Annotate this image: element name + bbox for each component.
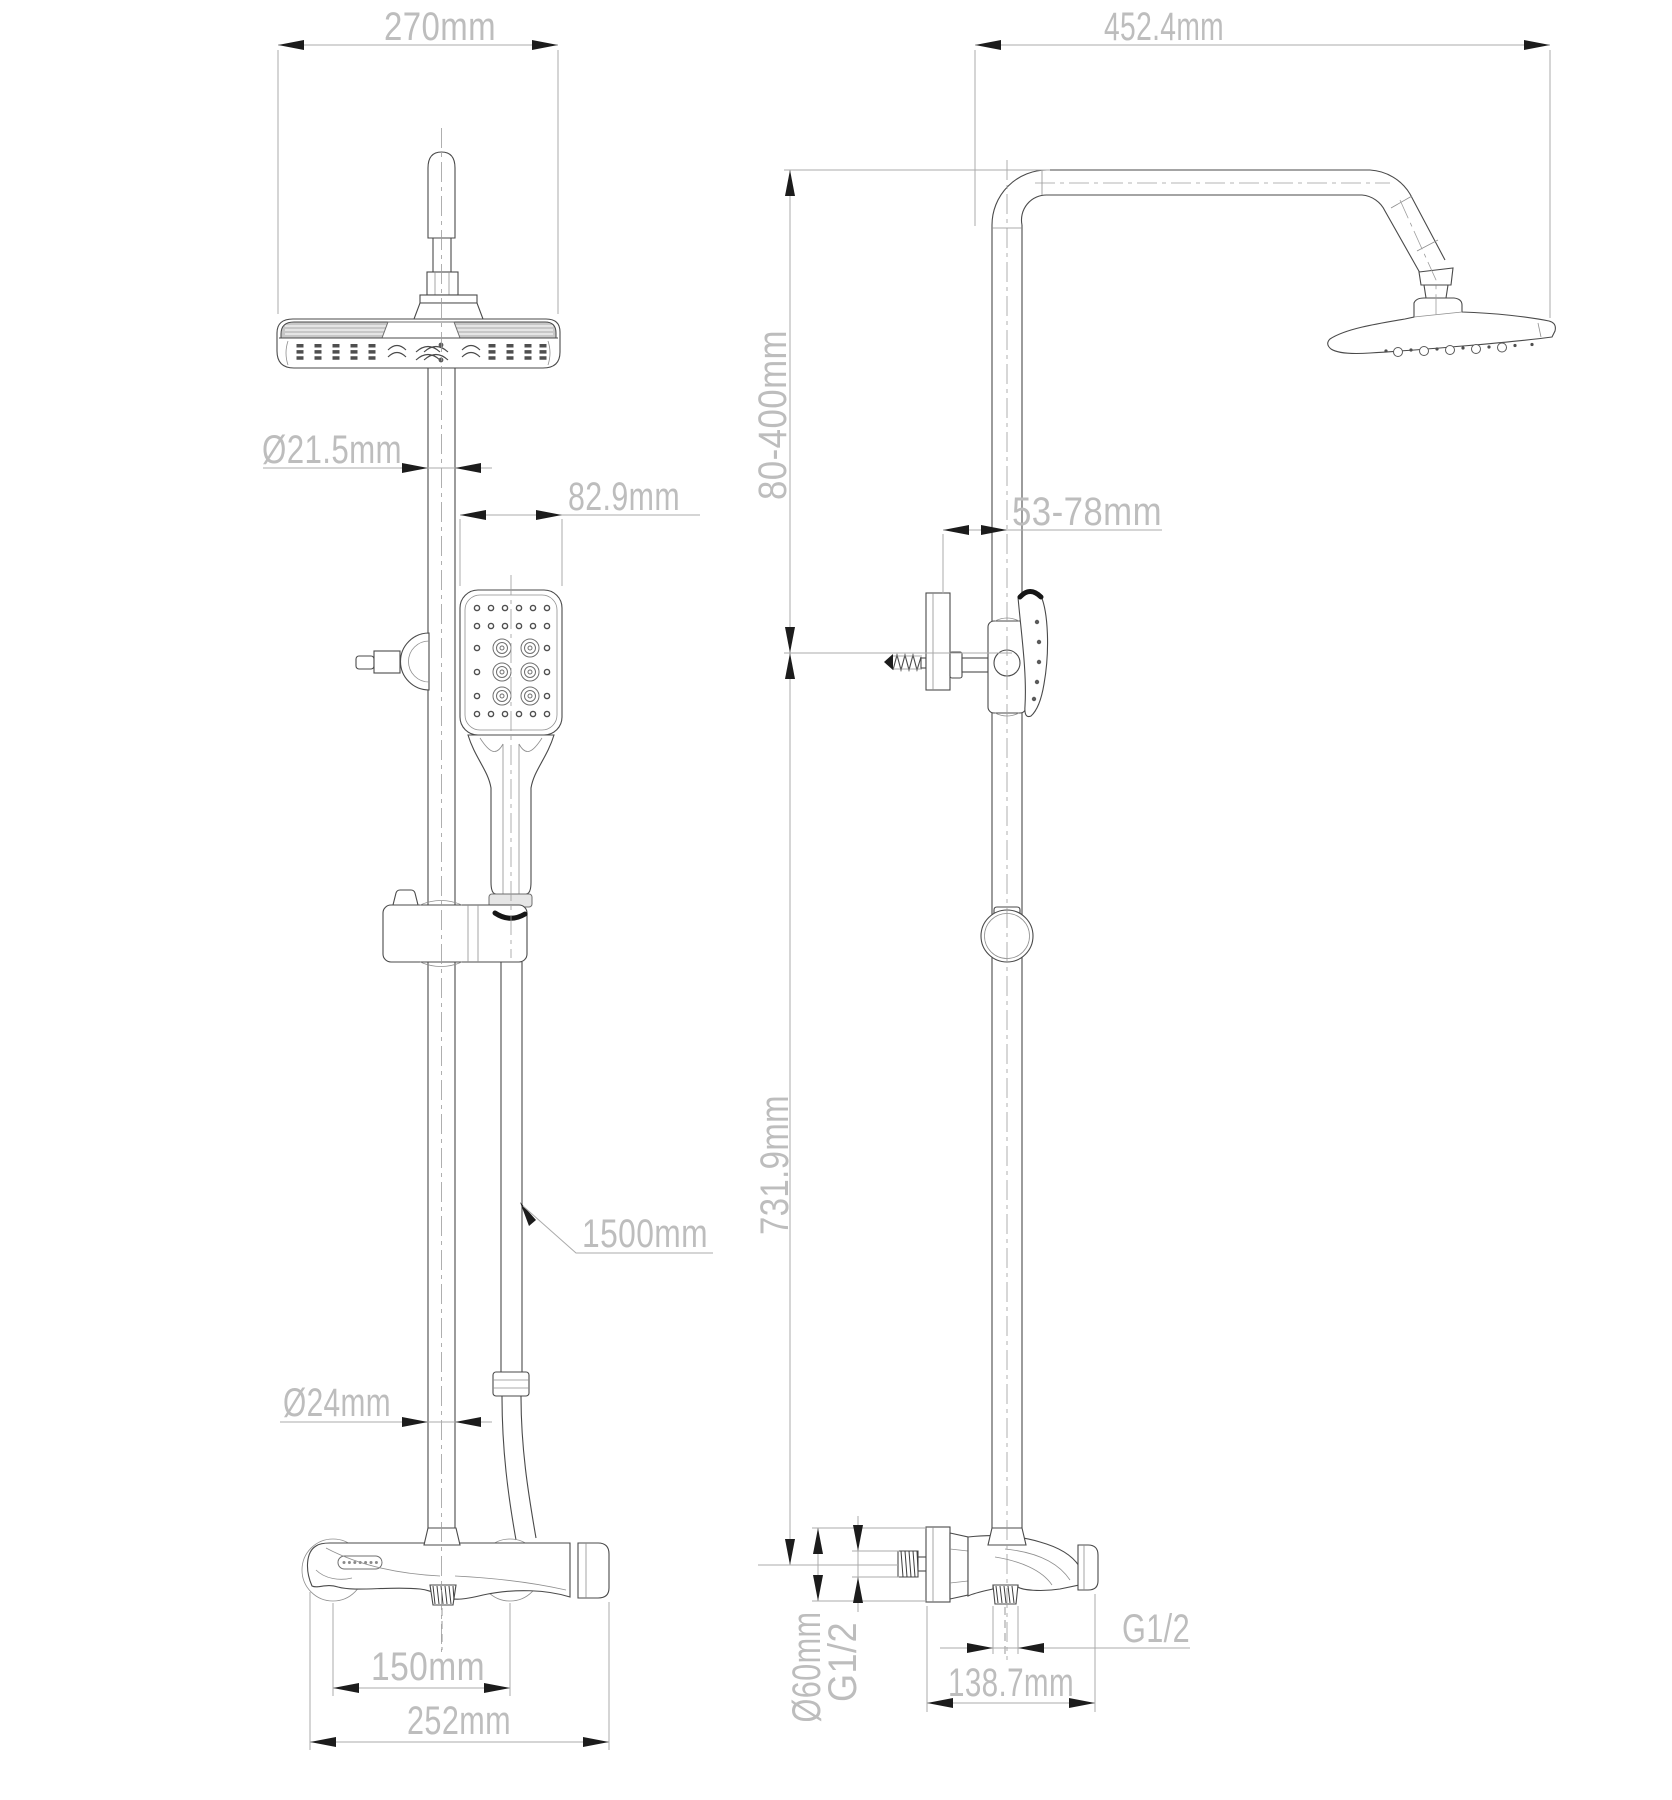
mixer-front <box>302 1528 609 1650</box>
dim-outlet-thread: G1/2 <box>1122 1607 1190 1651</box>
dim-bracket-height-range: 80-400mm <box>751 330 795 500</box>
dim-head-width: 270mm <box>384 5 496 49</box>
mixer-handle-side <box>1078 1545 1098 1590</box>
dim-rail-length: 731.9mm <box>753 1095 797 1235</box>
dim-rail-upper-diameter: Ø21.5mm <box>262 428 402 472</box>
mixer-handle-front <box>578 1543 609 1598</box>
dim-inlet-thread: G1/2 <box>821 1622 865 1702</box>
technical-drawing-page: 270mm Ø21.5mm 82.9mm 1500mm Ø24mm <box>0 0 1672 1800</box>
mixer-wall-plate-side <box>926 1527 950 1602</box>
dim-body-depth: 138.7mm <box>948 1661 1074 1705</box>
overhead-shower-side <box>1328 298 1556 357</box>
side-dimensions: 452.4mm 80-400mm 53-78mm 731.9mm <box>751 5 1550 1723</box>
head-connector-front <box>414 272 483 319</box>
dim-hose-length: 1500mm <box>582 1212 708 1256</box>
mixer-hex-nut <box>950 1533 968 1599</box>
dim-mixer-width: 252mm <box>407 1699 511 1743</box>
side-view: 452.4mm 80-400mm 53-78mm 731.9mm <box>751 5 1555 1723</box>
dim-inlet-spacing: 150mm <box>371 1645 485 1689</box>
dim-wall-clearance: 53-78mm <box>1012 490 1162 534</box>
rail-bracket-knob-front <box>356 633 429 690</box>
arm-nut <box>1419 268 1453 285</box>
dim-handshower-width: 82.9mm <box>568 475 680 519</box>
dim-arm-reach: 452.4mm <box>1104 5 1224 49</box>
front-view: 270mm Ø21.5mm 82.9mm 1500mm Ø24mm <box>262 5 713 1750</box>
dim-rail-lower-diameter: Ø24mm <box>283 1381 391 1425</box>
overhead-shower-front <box>277 319 560 368</box>
bracket-wall-plate <box>926 593 950 690</box>
mixer-side <box>898 1527 1098 1656</box>
shower-arm-side <box>992 170 1453 310</box>
front-dimensions: 270mm Ø21.5mm 82.9mm 1500mm Ø24mm <box>262 5 713 1750</box>
shower-hose-front <box>493 962 536 1540</box>
shower-system-technical-drawing: 270mm Ø21.5mm 82.9mm 1500mm Ø24mm <box>0 0 1672 1800</box>
